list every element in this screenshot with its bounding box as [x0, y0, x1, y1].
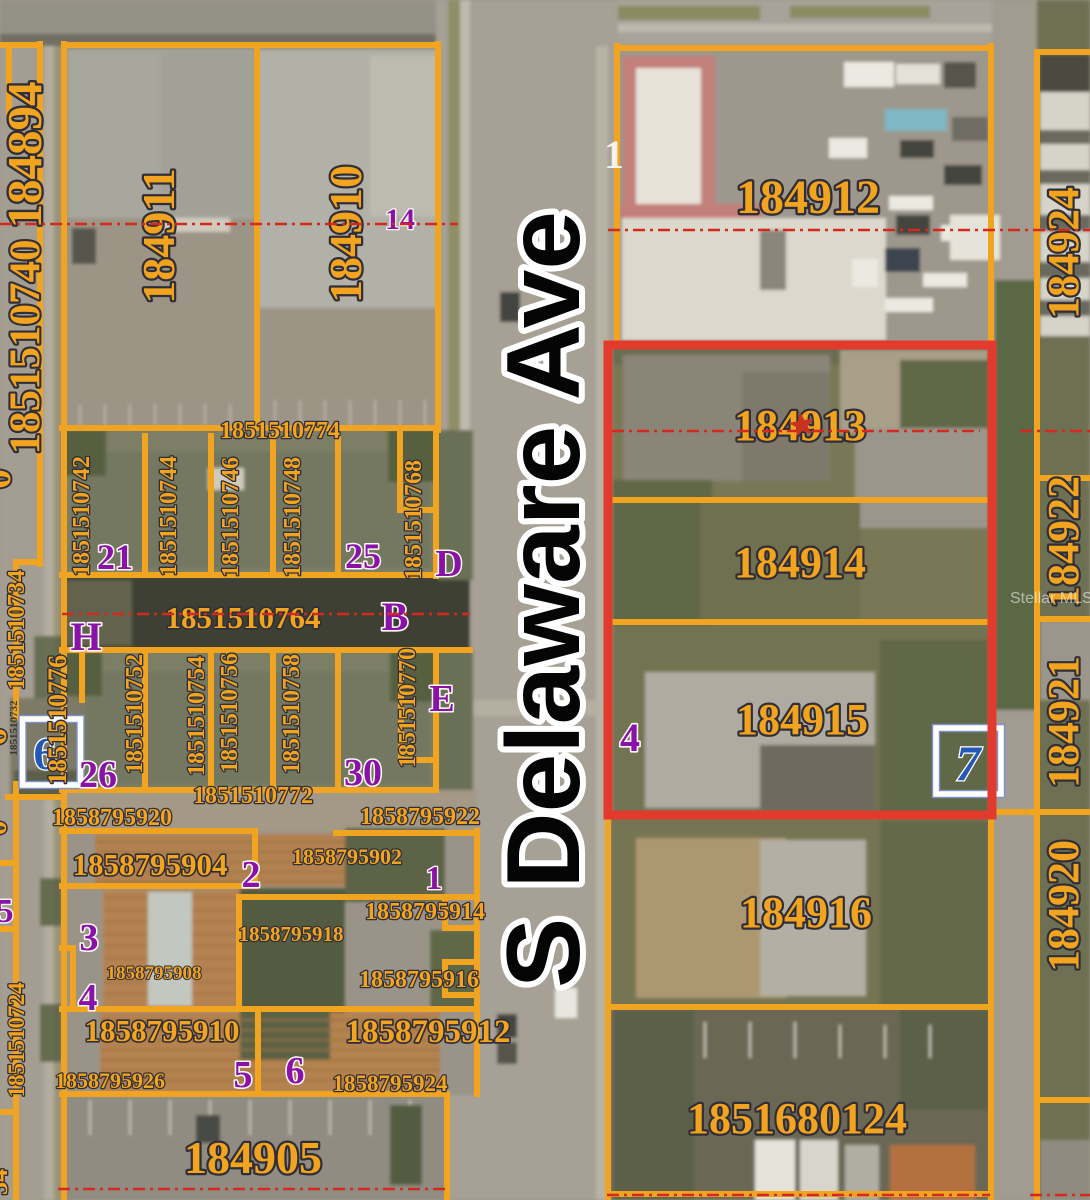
svg-text:34: 34	[0, 1169, 13, 1195]
svg-text:184921: 184921	[1039, 656, 1088, 788]
svg-text:E: E	[429, 678, 454, 720]
svg-text:4: 4	[620, 715, 640, 760]
svg-text:1858795916: 1858795916	[359, 967, 479, 993]
svg-text:1851510754: 1851510754	[184, 656, 210, 776]
svg-text:184911: 184911	[133, 168, 184, 303]
svg-text:1851680124: 1851680124	[687, 1094, 907, 1143]
svg-text:1851510744: 1851510744	[156, 456, 182, 576]
svg-text:1851510724: 1851510724	[4, 982, 29, 1098]
svg-text:0: 0	[0, 821, 13, 836]
svg-text:184924: 184924	[1039, 187, 1088, 319]
svg-text:1851510776: 1851510776	[43, 655, 72, 785]
svg-text:1851510758: 1851510758	[279, 654, 305, 774]
svg-text:184915: 184915	[736, 695, 868, 744]
svg-text:1851510772: 1851510772	[193, 783, 313, 809]
svg-text:1858795908: 1858795908	[107, 963, 202, 984]
svg-text:Stellar MLS: Stellar MLS	[1010, 590, 1090, 607]
svg-text:1851510770: 1851510770	[395, 648, 421, 768]
svg-text:1: 1	[604, 132, 624, 177]
svg-text:4: 4	[79, 977, 98, 1019]
svg-text:14: 14	[385, 203, 415, 236]
svg-text:184922: 184922	[1039, 476, 1088, 608]
svg-text:184914: 184914	[734, 538, 866, 587]
svg-text:25: 25	[345, 536, 381, 576]
svg-text:1851510768: 1851510768	[401, 460, 427, 580]
svg-text:1858795920: 1858795920	[52, 805, 172, 831]
svg-text:2: 2	[242, 854, 261, 896]
svg-text:5: 5	[234, 1054, 253, 1096]
svg-text:1858795914: 1858795914	[365, 899, 485, 925]
svg-text:1858795918: 1858795918	[239, 922, 344, 946]
svg-text:1851510732: 1851510732	[8, 700, 20, 756]
svg-text:6: 6	[286, 1050, 305, 1092]
svg-text:1858795924: 1858795924	[333, 1071, 449, 1096]
svg-text:7: 7	[956, 735, 983, 791]
svg-text:6: 6	[0, 729, 14, 746]
svg-text:184912: 184912	[736, 171, 880, 224]
svg-text:184894: 184894	[0, 82, 52, 229]
svg-text:1: 1	[426, 860, 443, 897]
svg-text:1851510774: 1851510774	[220, 418, 340, 444]
svg-text:D: D	[435, 543, 462, 585]
svg-text:26: 26	[79, 754, 117, 796]
svg-text:1858795902: 1858795902	[292, 844, 402, 869]
svg-text:H: H	[70, 614, 101, 659]
svg-text:1851510764: 1851510764	[166, 600, 321, 635]
svg-text:1851510742: 1851510742	[69, 456, 95, 576]
svg-text:5: 5	[0, 893, 14, 930]
svg-text:3: 3	[80, 917, 99, 959]
svg-text:1851510752: 1851510752	[122, 654, 148, 774]
svg-text:B: B	[382, 594, 409, 639]
svg-text:184910: 184910	[320, 165, 371, 303]
svg-text:1851510748: 1851510748	[280, 457, 306, 577]
svg-text:S Delaware Ave: S Delaware Ave	[486, 211, 602, 988]
svg-text:0: 0	[0, 469, 19, 489]
svg-text:1858795922: 1858795922	[360, 804, 480, 830]
svg-text:184916: 184916	[740, 888, 872, 937]
svg-text:1851510746: 1851510746	[218, 457, 244, 577]
svg-text:184905: 184905	[184, 1132, 322, 1183]
svg-text:1851510734: 1851510734	[4, 570, 30, 690]
svg-text:1851510756: 1851510756	[217, 653, 243, 773]
svg-text:184920: 184920	[1039, 840, 1088, 972]
svg-text:1858795912: 1858795912	[346, 1014, 511, 1050]
svg-text:1858795910: 1858795910	[85, 1013, 240, 1048]
svg-text:21: 21	[97, 537, 133, 577]
svg-text:1858795904: 1858795904	[73, 847, 228, 882]
svg-text:1851510740: 1851510740	[2, 240, 49, 455]
svg-text:30: 30	[344, 752, 382, 794]
svg-text:1858795926: 1858795926	[55, 1068, 165, 1093]
